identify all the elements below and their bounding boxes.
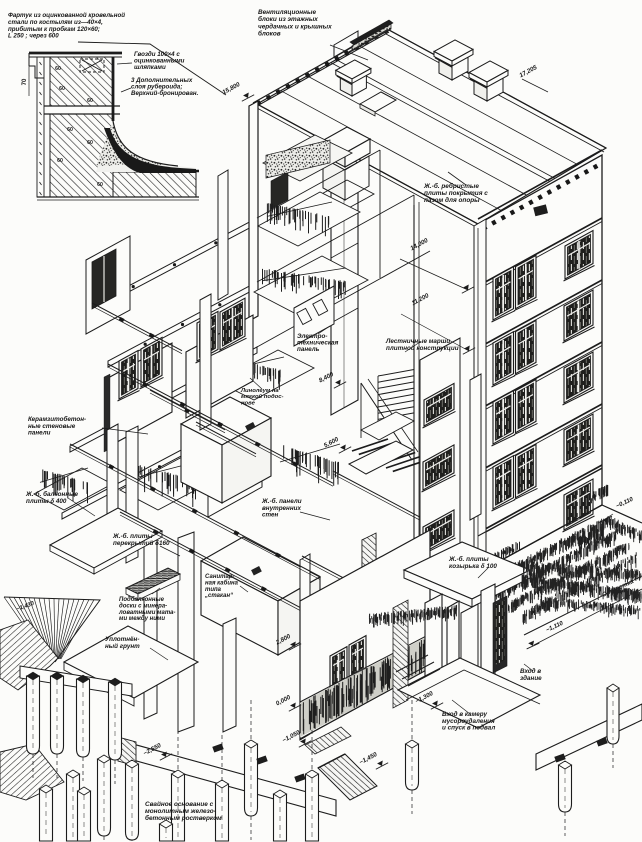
svg-text:плиты покрытия с: плиты покрытия с bbox=[424, 190, 488, 197]
svg-text:перекрытий δ160: перекрытий δ160 bbox=[113, 539, 170, 547]
svg-text:Линолеум на: Линолеум на bbox=[240, 388, 279, 394]
svg-text:60: 60 bbox=[87, 98, 93, 104]
svg-text:ный грунт: ный грунт bbox=[105, 642, 140, 650]
svg-text:60: 60 bbox=[87, 140, 93, 146]
svg-text:ми между ними: ми между ними bbox=[119, 616, 165, 622]
svg-text:Свайное основание с: Свайное основание с bbox=[145, 800, 214, 808]
svg-text:Вентиляционные: Вентиляционные bbox=[258, 9, 316, 16]
svg-text:Вход в: Вход в bbox=[520, 667, 541, 675]
svg-text:шляпками: шляпками bbox=[134, 64, 166, 71]
svg-text:„стакан“: „стакан“ bbox=[204, 593, 233, 599]
svg-text:Керамзитобетон-: Керамзитобетон- bbox=[28, 415, 86, 423]
svg-text:доски с минера-: доски с минера- bbox=[119, 603, 167, 609]
svg-text:чердачных и крышных: чердачных и крышных bbox=[258, 22, 332, 30]
svg-text:Ж.-б. панели: Ж.-б. панели bbox=[261, 497, 302, 505]
svg-text:ловатными мата-: ловатными мата- bbox=[118, 610, 176, 616]
svg-text:L 250 ; через 600: L 250 ; через 600 bbox=[8, 33, 59, 40]
svg-text:60: 60 bbox=[57, 158, 63, 164]
svg-text:бетонным ростверком: бетонным ростверком bbox=[145, 814, 222, 822]
svg-text:Санитар-: Санитар- bbox=[205, 574, 234, 580]
svg-text:пазом для опоры: пазом для опоры bbox=[424, 196, 480, 204]
svg-text:мусороудаления: мусороудаления bbox=[442, 717, 495, 725]
svg-text:Верхний-бронирован.: Верхний-бронирован. bbox=[131, 90, 199, 97]
svg-text:Вход в камеру: Вход в камеру bbox=[442, 710, 487, 718]
svg-text:козырька δ 100: козырька δ 100 bbox=[449, 563, 497, 570]
svg-text:и спуск в подвал: и спуск в подвал bbox=[442, 724, 495, 732]
svg-text:блоков: блоков bbox=[258, 30, 281, 38]
svg-text:Подбалконные: Подбалконные bbox=[119, 596, 165, 603]
svg-text:70: 70 bbox=[22, 78, 28, 85]
svg-text:стен: стен bbox=[262, 512, 279, 519]
svg-text:типа: типа bbox=[205, 587, 222, 593]
svg-text:панель: панель bbox=[297, 346, 320, 353]
svg-text:60: 60 bbox=[67, 127, 73, 133]
svg-text:плитной конструкции: плитной конструкции bbox=[386, 344, 459, 352]
svg-text:60: 60 bbox=[55, 66, 61, 72]
svg-text:здание: здание bbox=[520, 674, 542, 682]
svg-text:60: 60 bbox=[97, 182, 103, 188]
svg-text:нове: нове bbox=[241, 400, 256, 406]
svg-text:плиты δ 400: плиты δ 400 bbox=[26, 498, 67, 505]
svg-text:Ж.-б. ребристые: Ж.-б. ребристые bbox=[423, 182, 479, 190]
svg-text:60: 60 bbox=[59, 86, 65, 92]
svg-text:монолитным железо-: монолитным железо- bbox=[145, 808, 216, 815]
svg-text:Ж.-б. плиты: Ж.-б. плиты bbox=[448, 555, 489, 563]
svg-text:блоки из этажных: блоки из этажных bbox=[258, 15, 318, 23]
svg-text:мягкой подос-: мягкой подос- bbox=[241, 393, 284, 400]
svg-text:Ж.-б. плиты: Ж.-б. плиты bbox=[112, 532, 153, 540]
svg-text:панели: панели bbox=[28, 430, 51, 437]
svg-text:ная кабина: ная кабина bbox=[205, 579, 239, 586]
svg-text:Ж.-б. балконные: Ж.-б. балконные bbox=[25, 490, 78, 498]
